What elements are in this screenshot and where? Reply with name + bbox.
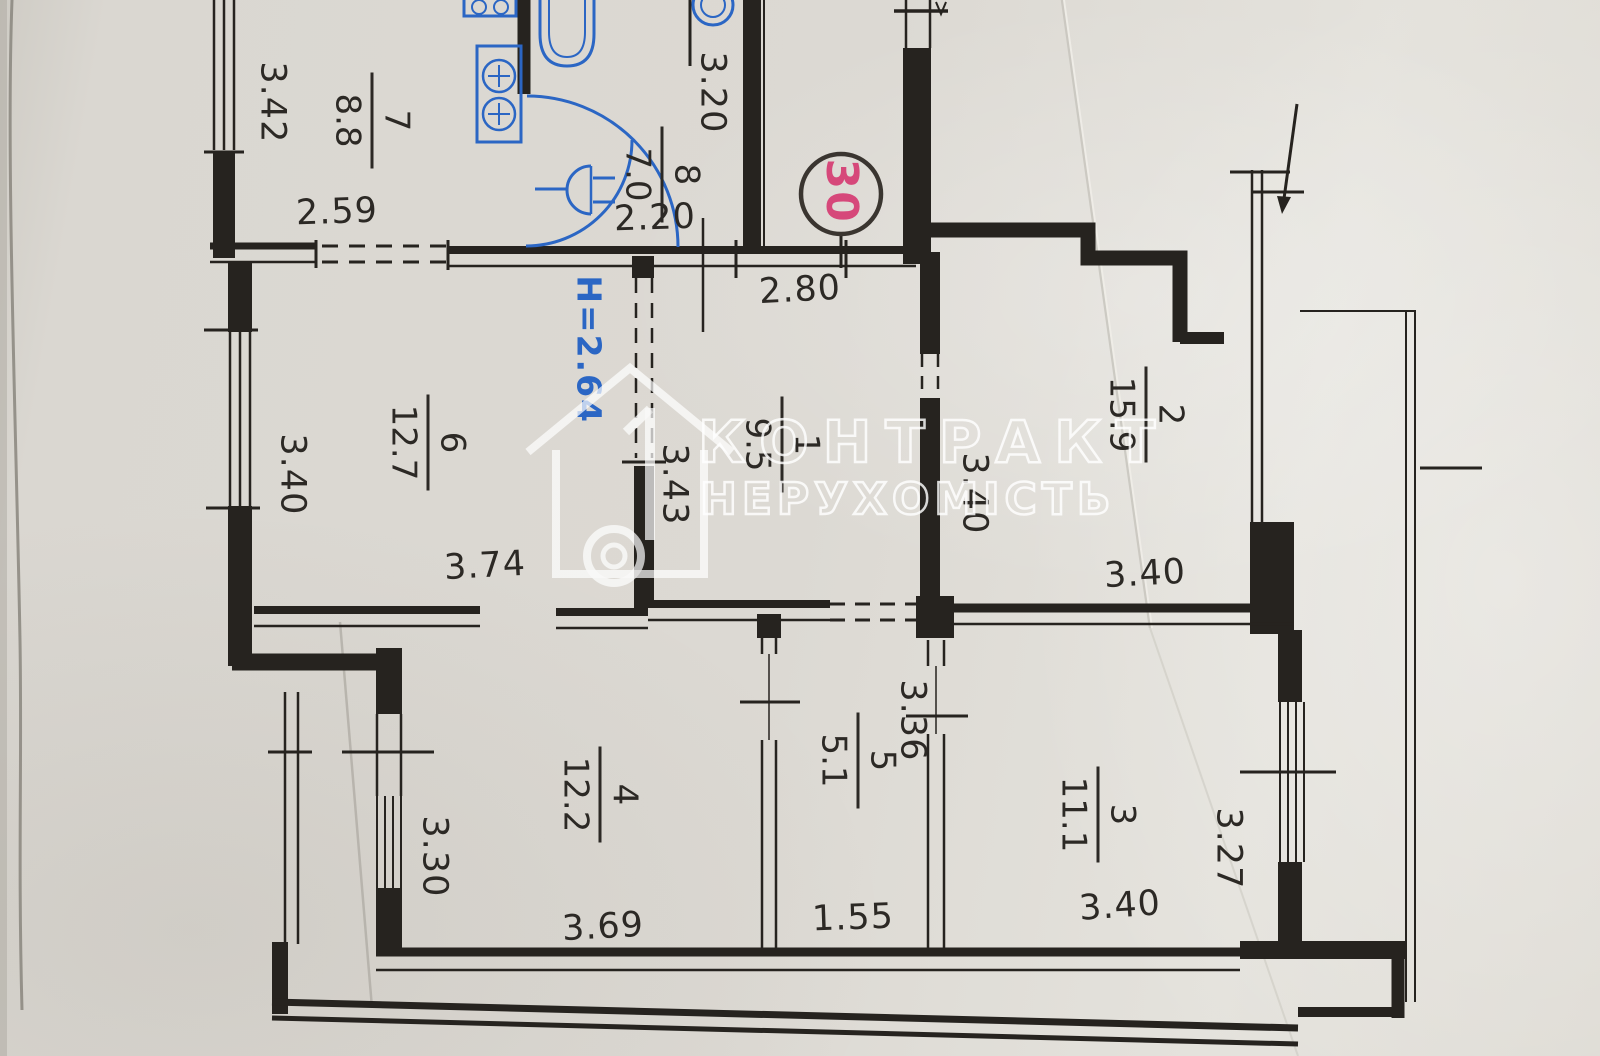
watermark-house-body: [556, 450, 704, 574]
watermark-house-roof: [528, 368, 732, 452]
watermark-logo: [0, 0, 1600, 1056]
floorplan-scan: 7 8.8 8 7.0 1 9.5 2 15.9 6 12.7 4 12.2 5…: [0, 0, 1600, 1056]
